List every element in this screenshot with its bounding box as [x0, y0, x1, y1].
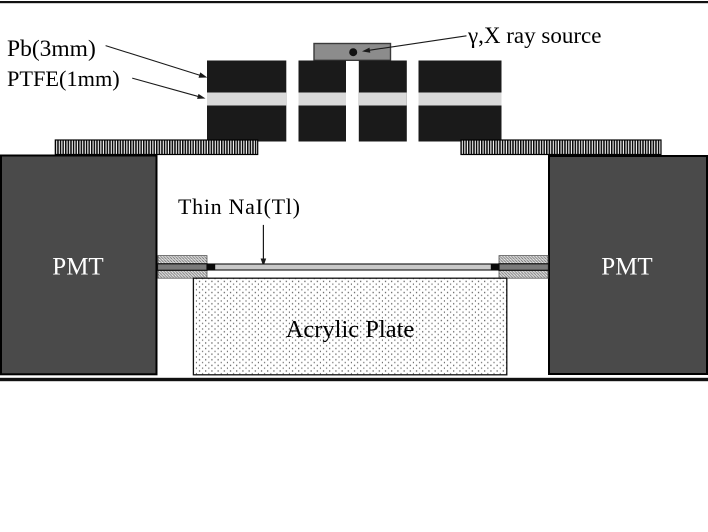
svg-text:PMT: PMT	[52, 254, 103, 281]
svg-text:Thin NaI(Tl): Thin NaI(Tl)	[178, 194, 301, 219]
svg-text:Pb(3mm): Pb(3mm)	[7, 36, 96, 62]
svg-text:PTFE(1mm): PTFE(1mm)	[7, 66, 120, 91]
svg-text:γ,X ray source: γ,X ray source	[467, 23, 601, 48]
svg-text:PMT: PMT	[601, 254, 652, 281]
svg-text:Acrylic Plate: Acrylic Plate	[286, 316, 415, 343]
